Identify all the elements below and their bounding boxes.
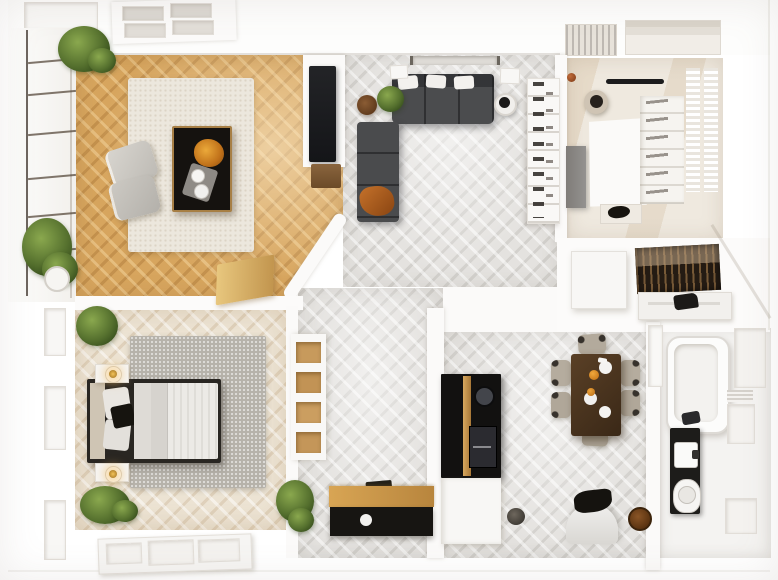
shoe-marks (646, 99, 668, 201)
quad-panel-recess (172, 20, 214, 35)
bath-window (725, 498, 757, 534)
side-table-top (499, 97, 510, 108)
plate (599, 406, 611, 418)
door-panel (106, 542, 143, 564)
plant (88, 48, 116, 73)
plant (112, 500, 138, 522)
living-bedroom-wall (75, 296, 303, 310)
black-pillow (110, 403, 136, 429)
glazed-niche (625, 20, 721, 55)
kitchen-base-cabinet (441, 478, 501, 544)
plant (76, 306, 118, 346)
bath-window (727, 404, 755, 444)
kitchen-top-wall (443, 287, 557, 332)
office-chair-seat (590, 95, 603, 108)
bedroom-window (44, 500, 66, 560)
bath-window (734, 328, 766, 388)
speaker (500, 68, 521, 85)
books (533, 82, 544, 218)
tray-cup (191, 169, 205, 183)
slatted-rack (686, 68, 700, 192)
wardrobe-island (571, 251, 627, 309)
sofa-pillow (454, 75, 475, 89)
sofa-pillow (426, 74, 447, 88)
bedroom-window (44, 386, 66, 450)
plant (288, 508, 314, 532)
dining-chair (577, 333, 606, 355)
niche-box (296, 342, 321, 363)
basin-tap (692, 450, 699, 459)
dining-chair (551, 392, 571, 418)
wood-side-table (357, 95, 377, 115)
door-panel (198, 538, 241, 562)
lamp-glow (109, 470, 117, 478)
right-outer-edge (768, 0, 770, 330)
niche-box (296, 432, 321, 453)
folded-blanket (134, 383, 152, 459)
striped-duvet (168, 383, 218, 459)
niche-box (296, 402, 321, 423)
orange-fruit (589, 370, 599, 380)
orange-fruit (587, 388, 595, 396)
books (546, 92, 553, 202)
bath-door (648, 325, 663, 387)
console-oak-top (329, 486, 434, 507)
flower-arrangement (194, 139, 224, 167)
quad-panel-recess (124, 23, 166, 38)
quad-panel-recess (122, 6, 164, 21)
white-planter (44, 266, 70, 292)
slatted-rack (704, 68, 718, 192)
lamp-glow (109, 370, 117, 378)
niche-box (296, 372, 321, 393)
floor-plan-render (0, 0, 778, 580)
dining-chair (620, 360, 640, 386)
floor-bowl (507, 508, 525, 525)
folded-blanket (151, 383, 168, 459)
wall-rail (606, 79, 664, 84)
bedroom-window (44, 308, 66, 356)
lounge-wall-shelf (410, 56, 500, 65)
console-black-front (330, 507, 433, 536)
hanging-clothes (635, 244, 721, 294)
bath-louver (727, 390, 753, 402)
toilet-lid (678, 486, 696, 504)
terracotta-ball (567, 73, 576, 82)
tv-wood-base (311, 164, 341, 188)
console-knob (360, 514, 372, 526)
quad-panel-recess (170, 3, 212, 18)
dining-chair (551, 360, 571, 386)
door-panel (148, 539, 195, 566)
tv-screen (309, 66, 336, 162)
tray-cup (194, 184, 209, 199)
speaker (390, 65, 409, 80)
striped-niche (565, 24, 617, 56)
kitchen-sink (474, 386, 495, 407)
office-dresser (566, 146, 586, 208)
module-handle (473, 446, 491, 448)
plant (377, 86, 404, 112)
floor-vase (628, 507, 652, 531)
dining-chair (620, 390, 640, 416)
